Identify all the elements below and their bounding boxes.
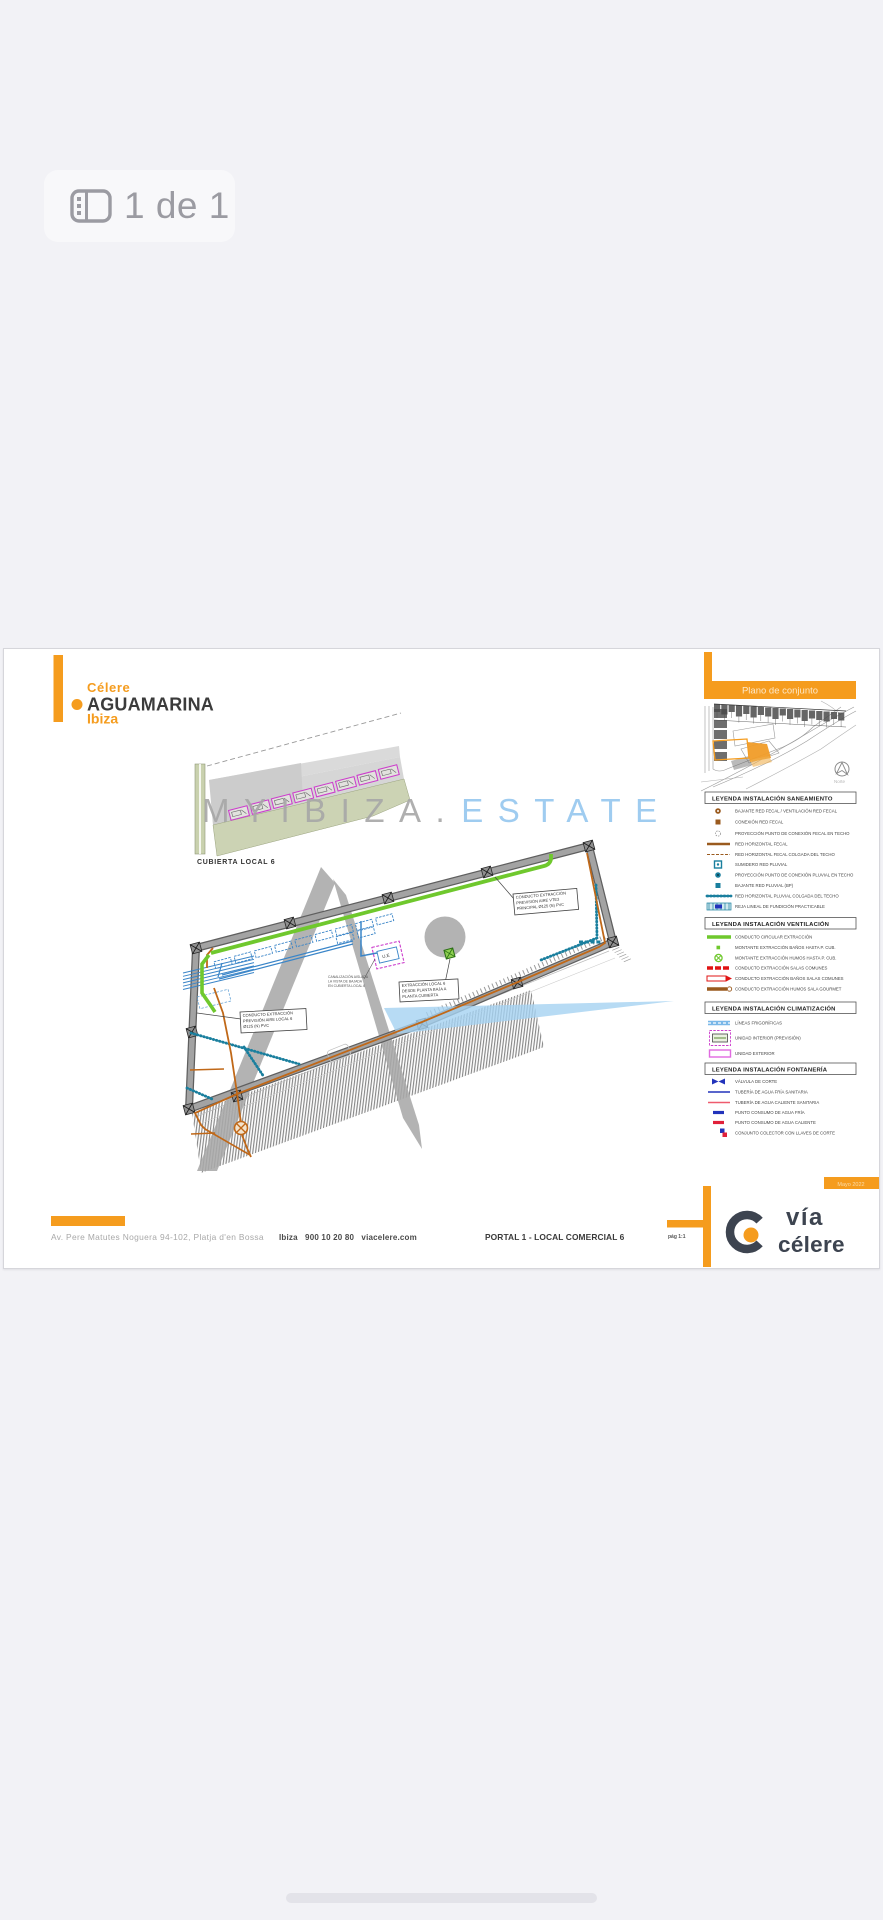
svg-text:CUBIERTA LOCAL 6: CUBIERTA LOCAL 6 [197, 859, 275, 866]
svg-text:vía: vía [786, 1204, 824, 1231]
svg-text:LEYENDA INSTALACIÓN FONTANERÍA: LEYENDA INSTALACIÓN FONTANERÍA [712, 1065, 828, 1073]
svg-text:SUMIDERO RED PLUVIAL: SUMIDERO RED PLUVIAL [735, 862, 788, 867]
svg-text:Av. Pere Matutes Noguera 94-10: Av. Pere Matutes Noguera 94-102, Platja … [51, 1232, 264, 1242]
svg-text:BAJANTE RED FECAL / VENTILACI: BAJANTE RED FECAL / VENTILACIÓN RED FECA… [735, 809, 838, 814]
svg-text:TUBERÍA DE AGUA CALIENTE SANIT: TUBERÍA DE AGUA CALIENTE SANITARIA [735, 1100, 819, 1105]
svg-text:MYIBIZA.ESTATE: MYIBIZA.ESTATE [202, 792, 672, 829]
svg-text:UNIDAD INTERIOR (PREVISIÓN): UNIDAD INTERIOR (PREVISIÓN) [735, 1036, 801, 1041]
svg-text:PORTAL 1 - LOCAL COMERCIAL 6: PORTAL 1 - LOCAL COMERCIAL 6 [485, 1232, 625, 1242]
svg-text:Ibiza 900 10 20 80 viacele: Ibiza 900 10 20 80 viacelere.com [279, 1233, 417, 1242]
svg-text:RED HORIZONTAL FECAL COLGADA: RED HORIZONTAL FECAL COLGADA DEL TECHO [735, 852, 836, 857]
svg-text:Norte: Norte [834, 779, 846, 784]
svg-text:TUBERÍA DE AGUA FRÍA SANITARIA: TUBERÍA DE AGUA FRÍA SANITARIA [735, 1090, 808, 1095]
svg-text:VÁLVULA DE CORTE: VÁLVULA DE CORTE [735, 1079, 777, 1084]
svg-text:BAJANTE RED PLUVIAL (BP): BAJANTE RED PLUVIAL (BP) [735, 883, 794, 888]
svg-text:PUNTO CONSUMO DE AGUA FRÍA: PUNTO CONSUMO DE AGUA FRÍA [735, 1110, 805, 1115]
svg-text:REJA LINEAL DE FUNDICIÓN PRACT: REJA LINEAL DE FUNDICIÓN PRACTICABLE [735, 904, 825, 909]
svg-text:EN CUBIERTA LOCAL 6: EN CUBIERTA LOCAL 6 [328, 984, 365, 988]
svg-text:LEYENDA INSTALACIÓN VENTILACIÓ: LEYENDA INSTALACIÓN VENTILACIÓN [712, 920, 829, 928]
svg-text:Célere: Célere [87, 680, 130, 695]
svg-text:Plano de conjunto: Plano de conjunto [742, 686, 818, 697]
svg-text:RED HORIZONTAL FECAL: RED HORIZONTAL FECAL [735, 842, 788, 847]
svg-text:UNIDAD EXTERIOR: UNIDAD EXTERIOR [735, 1051, 775, 1056]
svg-text:PROYECCIÓN PUNTO DE CONEXIÓN P: PROYECCIÓN PUNTO DE CONEXIÓN PLUVIAL EN … [735, 873, 854, 878]
svg-text:CANALIZACIÓN AISLADA: CANALIZACIÓN AISLADA [328, 974, 369, 979]
svg-text:LEYENDA INSTALACIÓN SANEAMIENT: LEYENDA INSTALACIÓN SANEAMIENTO [712, 794, 833, 802]
svg-text:Ibiza: Ibiza [87, 711, 118, 727]
svg-text:célere: célere [778, 1232, 845, 1257]
svg-text:CONDUCTO EXTRACCIÓN SALAS COMU: CONDUCTO EXTRACCIÓN SALAS COMUNES [735, 966, 827, 971]
svg-text:CONJUNTO COLECTOR CON LLAVES D: CONJUNTO COLECTOR CON LLAVES DE CORTE [735, 1131, 835, 1136]
svg-text:CONEXIÓN RED FECAL: CONEXIÓN RED FECAL [735, 820, 784, 825]
svg-text:PROYECCIÓN PUNTO DE CONEXIÓN F: PROYECCIÓN PUNTO DE CONEXIÓN FECAL EN TE… [735, 831, 850, 836]
svg-text:CONDUCTO EXTRACCIÓN BAÑOS SALA: CONDUCTO EXTRACCIÓN BAÑOS SALAS COMUNES [735, 976, 844, 981]
svg-text:CONDUCTO EXTRACCIÓN HUMOS SAL: CONDUCTO EXTRACCIÓN HUMOS SALA GOURMET [735, 987, 842, 992]
svg-text:PUNTO CONSUMO DE AGUA CALIENTE: PUNTO CONSUMO DE AGUA CALIENTE [735, 1120, 816, 1125]
svg-text:MONTANTE EXTRACCIÓN BAÑOS HAS: MONTANTE EXTRACCIÓN BAÑOS HASTA P. CUB. [735, 945, 836, 950]
svg-text:RED HORIZONTAL PLUVIAL COLGAD: RED HORIZONTAL PLUVIAL COLGADA DEL TECHO [735, 894, 839, 899]
svg-text:Mayo 2022: Mayo 2022 [837, 1182, 864, 1188]
svg-text:LA VISTA DE BAJADA: LA VISTA DE BAJADA [328, 979, 363, 983]
svg-text:LÍNEAS FRIGORÍFICAS: LÍNEAS FRIGORÍFICAS [735, 1021, 782, 1026]
svg-text:CONDUCTO CIRCULAR EXTRACCIÓN: CONDUCTO CIRCULAR EXTRACCIÓN [735, 935, 812, 940]
svg-text:LEYENDA INSTALACIÓN CLIMATIZAC: LEYENDA INSTALACIÓN CLIMATIZACIÓN [712, 1004, 836, 1012]
svg-text:pág 1:1: pág 1:1 [668, 1234, 686, 1240]
svg-text:MONTANTE EXTRACCIÓN HUMOS HAS: MONTANTE EXTRACCIÓN HUMOS HASTA P. CUB. [735, 956, 836, 961]
